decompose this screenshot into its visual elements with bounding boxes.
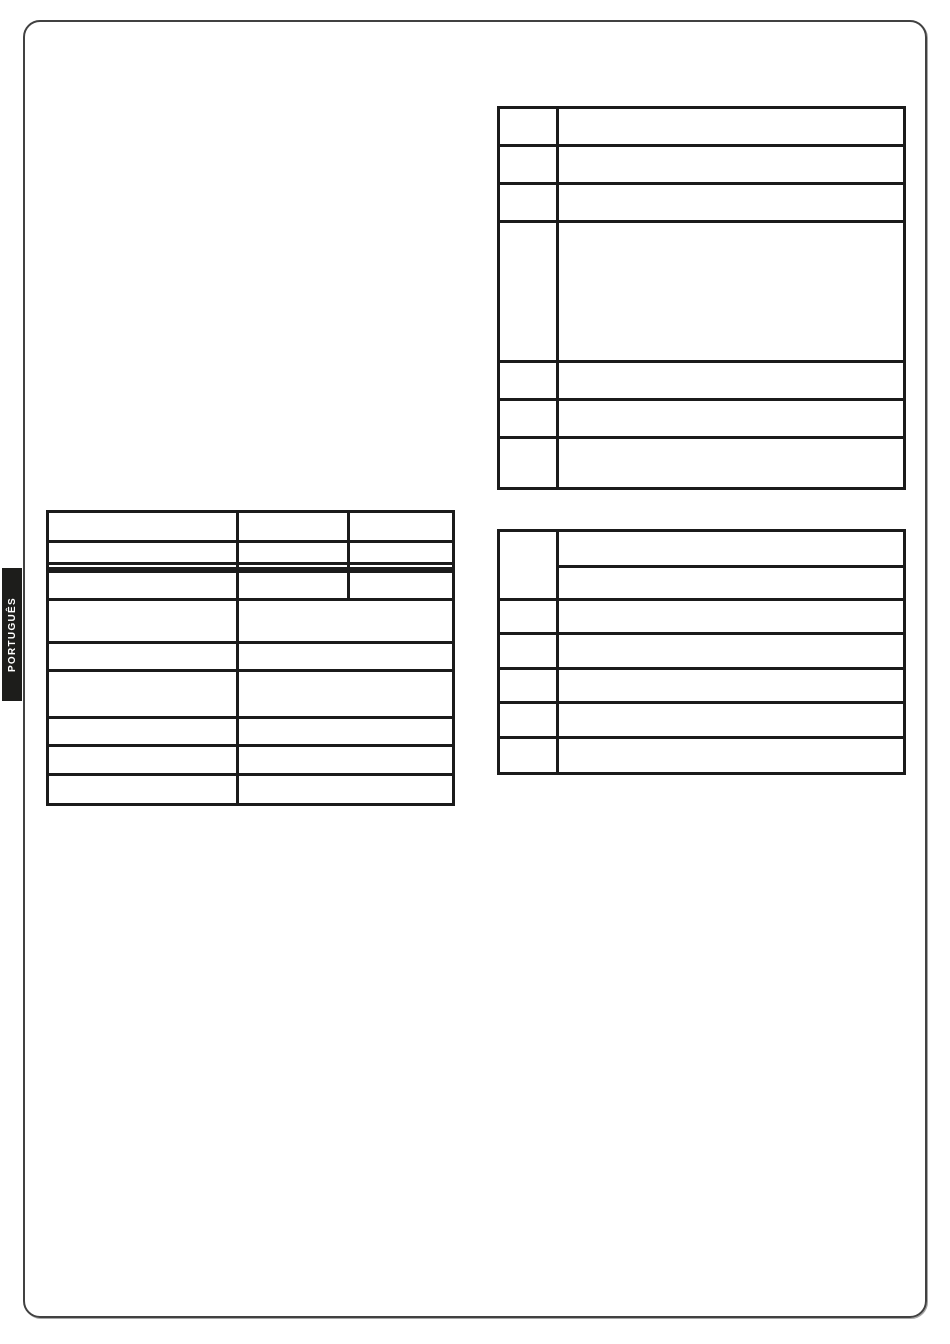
- table-cell: [238, 718, 454, 746]
- table-row: [48, 746, 454, 775]
- table-cell: [558, 703, 905, 738]
- table-cell: [238, 570, 349, 600]
- table-row: [499, 146, 905, 184]
- table-cell: [558, 438, 905, 489]
- table-row: [499, 108, 905, 146]
- table-row: [499, 362, 905, 400]
- table-row: [499, 400, 905, 438]
- table-cell: [499, 438, 558, 489]
- table-cell: [558, 600, 905, 634]
- table-cell: [48, 542, 238, 564]
- table-cell: [499, 108, 558, 146]
- table-cell: [558, 400, 905, 438]
- table-row: [48, 671, 454, 718]
- table-cell: [558, 531, 905, 567]
- table-cell: [48, 746, 238, 775]
- table-cell: [499, 738, 558, 774]
- table-cell: [349, 570, 454, 600]
- table-cell: [48, 775, 238, 805]
- table-cell: [499, 669, 558, 703]
- table-cell: [499, 146, 558, 184]
- table-cell: [238, 600, 454, 643]
- table-cell: [558, 634, 905, 669]
- table-cell: [499, 184, 558, 222]
- table-cell: [558, 108, 905, 146]
- table-cell: [499, 703, 558, 738]
- table-cell: [558, 184, 905, 222]
- table-cell: [48, 671, 238, 718]
- table-row: [48, 542, 454, 564]
- table-cell: [48, 600, 238, 643]
- table-cell: [499, 634, 558, 669]
- table-row: [499, 438, 905, 489]
- table-cell: [558, 222, 905, 362]
- table-cell: [558, 567, 905, 600]
- table-cell: [499, 531, 558, 600]
- table-row: [499, 738, 905, 774]
- language-tab-portugues: PORTUGUÊS: [2, 568, 22, 701]
- table-cell: [48, 570, 238, 600]
- table-cell: [499, 400, 558, 438]
- table-row: [48, 643, 454, 671]
- top-right-table: [497, 106, 906, 490]
- table-row: [499, 634, 905, 669]
- table-row: [48, 775, 454, 805]
- table-row: [499, 567, 905, 600]
- table-row: [499, 600, 905, 634]
- table-cell: [558, 146, 905, 184]
- table-row: [499, 184, 905, 222]
- table-row: [48, 600, 454, 643]
- mid-right-table: [497, 529, 906, 775]
- table-cell: [349, 542, 454, 564]
- table-cell: [499, 222, 558, 362]
- table-cell: [238, 671, 454, 718]
- table-cell: [499, 600, 558, 634]
- table-row: [499, 531, 905, 567]
- table-row: [499, 669, 905, 703]
- table-row: [499, 703, 905, 738]
- table-cell: [238, 746, 454, 775]
- table-row: [48, 570, 454, 600]
- table-cell: [349, 512, 454, 542]
- table-row: [499, 222, 905, 362]
- table-cell: [558, 669, 905, 703]
- table-cell: [48, 643, 238, 671]
- language-tab-label: PORTUGUÊS: [7, 597, 18, 672]
- table-cell: [558, 362, 905, 400]
- left-spec-table: [46, 510, 455, 806]
- table-cell: [238, 775, 454, 805]
- table-cell: [48, 512, 238, 542]
- table-cell: [238, 512, 349, 542]
- table-cell: [499, 362, 558, 400]
- table-cell: [238, 643, 454, 671]
- table-cell: [238, 542, 349, 564]
- table-cell: [558, 738, 905, 774]
- table-cell: [48, 718, 238, 746]
- table-row: [48, 718, 454, 746]
- table-row: [48, 512, 454, 542]
